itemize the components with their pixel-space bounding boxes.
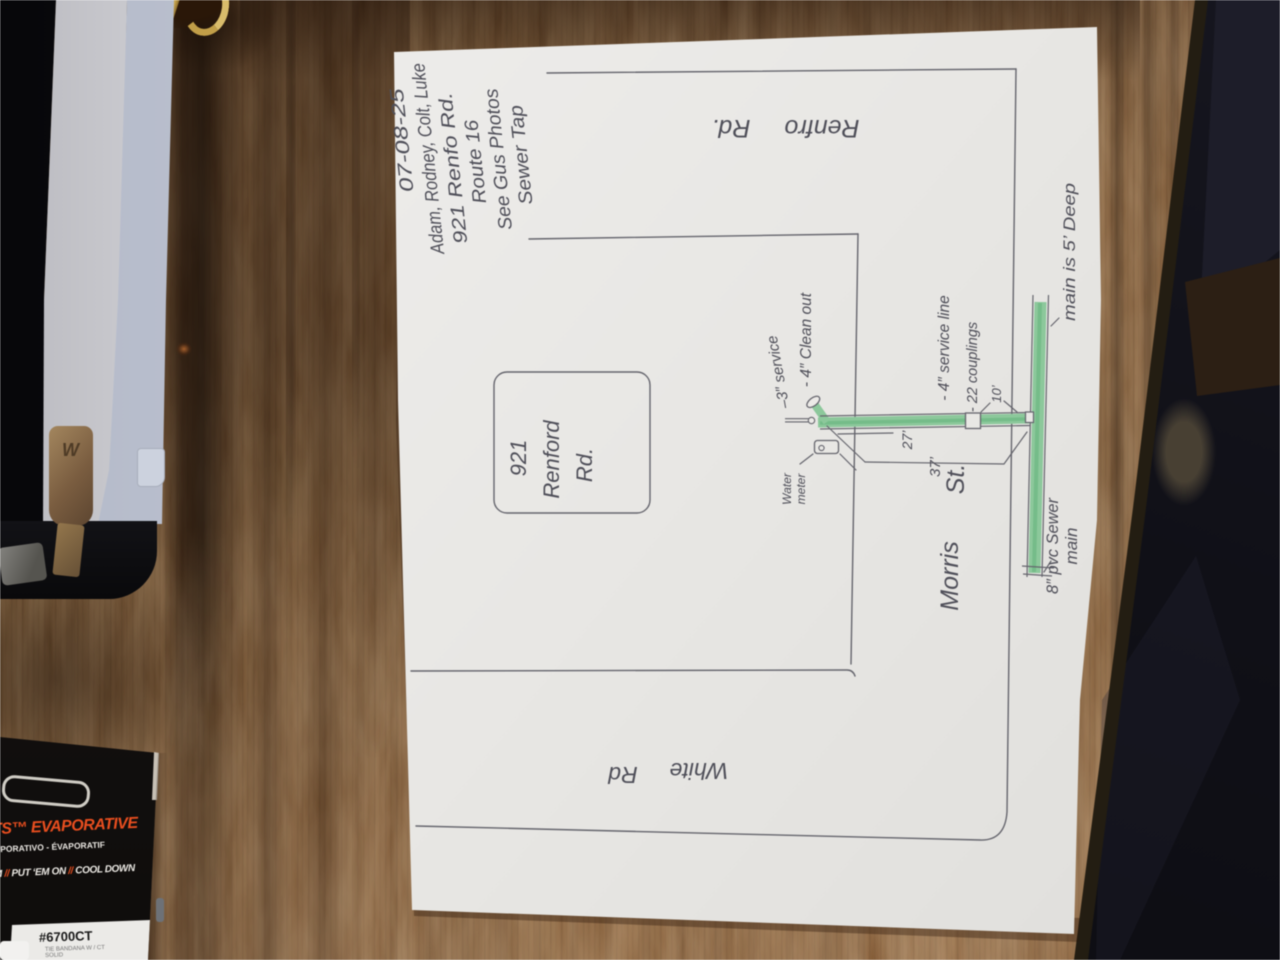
svg-text:Renfro: Renfro	[784, 114, 859, 142]
svg-text:- 4″ Clean out: - 4″ Clean out	[798, 292, 815, 387]
svg-text:Water: Water	[780, 472, 794, 505]
svg-text:- 4″ service line: - 4″ service line	[936, 295, 953, 401]
svg-text:meter: meter	[794, 473, 808, 505]
svg-text:- 22 couplings: - 22 couplings	[965, 322, 981, 412]
svg-text:Rd.: Rd.	[572, 448, 597, 482]
svg-text:10’: 10’	[989, 384, 1004, 402]
svg-text:Rd.: Rd.	[712, 114, 751, 142]
svg-text:main is 5’ Deep: main is 5’ Deep	[1060, 183, 1079, 321]
svg-text:Renford: Renford	[539, 420, 564, 499]
svg-text:Morris: Morris	[936, 541, 964, 610]
svg-text:Rd: Rd	[607, 762, 638, 788]
svg-text:8″ pvc Sewer: 8″ pvc Sewer	[1043, 497, 1062, 594]
svg-text:main: main	[1062, 528, 1081, 565]
svg-text:921: 921	[506, 440, 531, 477]
svg-text:St.: St.	[942, 464, 970, 495]
svg-text:White: White	[670, 758, 729, 784]
svg-text:27’: 27’	[899, 430, 915, 451]
svg-text:37’: 37’	[927, 456, 944, 477]
